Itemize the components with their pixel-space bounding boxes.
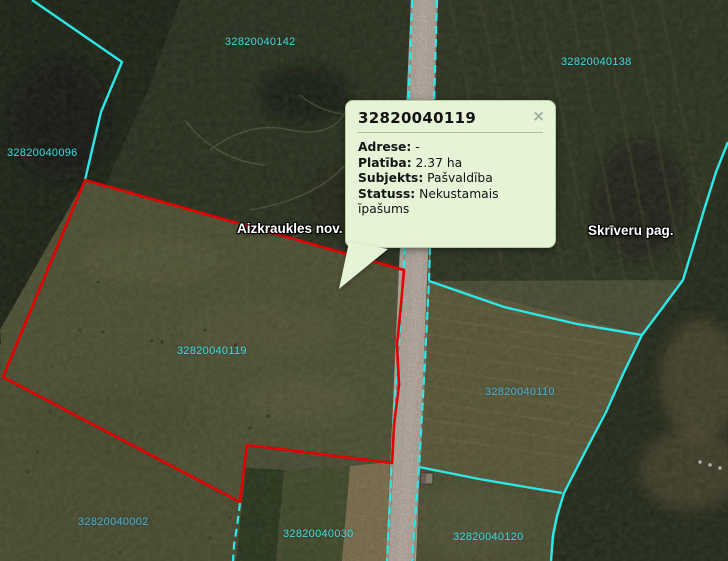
- popup-divider: [358, 132, 543, 133]
- popup-field: Statuss: Nekustamais īpašums: [358, 187, 543, 218]
- popup-field: Platība: 2.37 ha: [358, 156, 543, 172]
- parcel-info-popup: 32820040119 × Adrese: -Platība: 2.37 haS…: [345, 100, 556, 248]
- popup-field: Adrese: -: [358, 140, 543, 156]
- popup-fields: Adrese: -Platība: 2.37 haSubjekts: Pašva…: [358, 140, 543, 218]
- map-viewport[interactable]: 3282004014232820040138328200400963282004…: [0, 0, 728, 561]
- popup-tail: [336, 240, 392, 292]
- popup-field: Subjekts: Pašvaldība: [358, 171, 543, 187]
- close-icon[interactable]: ×: [532, 110, 545, 123]
- popup-title: 32820040119: [358, 109, 476, 127]
